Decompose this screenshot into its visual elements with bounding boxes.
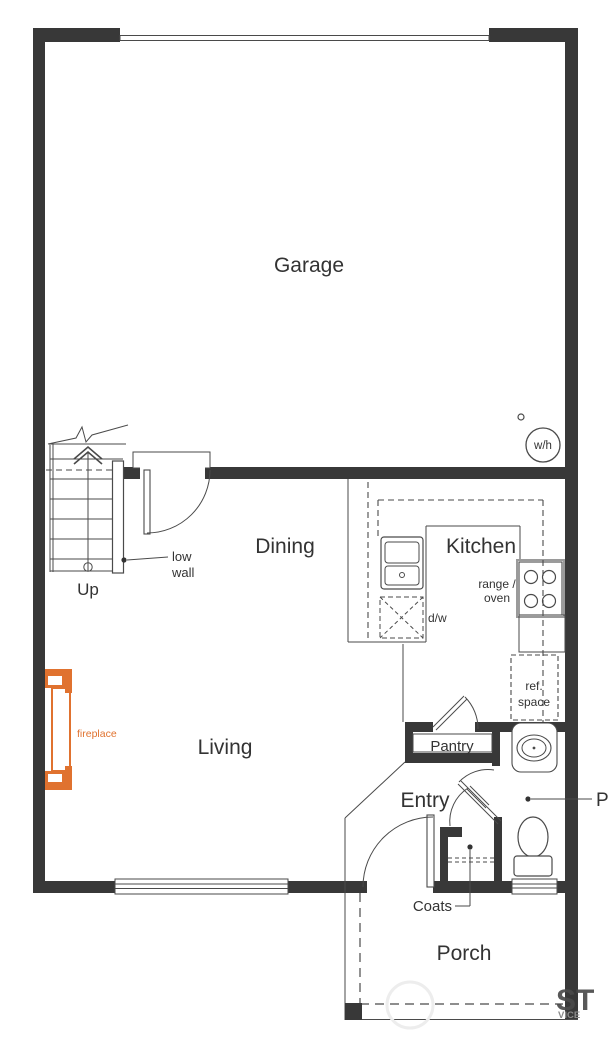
coats-label: Coats: [413, 898, 452, 915]
entry-label: Entry: [400, 789, 450, 812]
pantry-door: [433, 696, 478, 730]
entry-angled-wall: [345, 762, 405, 818]
floor-plan: ST VICE Garage Dining Kitchen Living Ent…: [0, 0, 613, 1042]
front-door-leaf: [427, 815, 434, 887]
up-arrow-icon: [74, 447, 102, 571]
powder-window: [512, 879, 557, 894]
door-landing: [133, 452, 210, 468]
low-wall-label-2: wall: [171, 565, 195, 580]
low-wall-leader: [127, 557, 168, 560]
watermark-text-2: VICE: [558, 1010, 580, 1021]
powder-label-partial: P: [596, 790, 609, 811]
garage-label: Garage: [274, 254, 344, 277]
water-heater-label: w/h: [533, 440, 552, 452]
porch-post: [345, 1003, 362, 1020]
fireplace-label: fireplace: [77, 728, 117, 740]
front-door-arc: [363, 817, 433, 887]
kitchen-sink-icon: [381, 537, 423, 589]
dishwasher-icon: [380, 597, 423, 638]
porch-label: Porch: [437, 942, 492, 965]
stair-break-line: [48, 425, 128, 444]
dining-label: Dining: [255, 535, 315, 558]
low-wall-leader-dot: [121, 557, 126, 562]
door-swing-arc: [147, 470, 210, 533]
ref-space-label-2: space: [518, 695, 550, 709]
garage-dining-door: [133, 452, 210, 534]
watermark: ST VICE: [387, 982, 594, 1028]
range-oven-label-1: range /: [478, 577, 516, 591]
up-label: Up: [77, 580, 99, 599]
low-wall: [113, 461, 124, 573]
powder-sink-icon: [512, 723, 557, 772]
kitchen-label: Kitchen: [446, 535, 516, 558]
low-wall-label-1: low: [172, 549, 192, 564]
dishwasher-label: d/w: [428, 611, 447, 625]
toilet-icon: [514, 817, 552, 876]
pantry-label: Pantry: [430, 738, 474, 755]
ref-space-label-1: ref.: [525, 679, 542, 693]
range-oven-icon: [517, 560, 564, 617]
living-window: [115, 879, 288, 894]
water-heater-icon: [518, 414, 560, 462]
kitchen-counters: [348, 479, 543, 722]
fireplace-icon: [45, 669, 72, 790]
floor-drain-icon: [518, 414, 524, 420]
door-leaf: [144, 470, 150, 534]
range-oven-label-2: oven: [484, 591, 510, 605]
coats-leader-dot: [467, 844, 472, 849]
floor-plan-svg: ST VICE Garage Dining Kitchen Living Ent…: [0, 0, 613, 1042]
living-label: Living: [198, 736, 253, 759]
counter-section: [519, 615, 565, 652]
front-door: [363, 815, 434, 887]
garage-door: [120, 36, 489, 41]
powder-leader-dot: [525, 796, 530, 801]
